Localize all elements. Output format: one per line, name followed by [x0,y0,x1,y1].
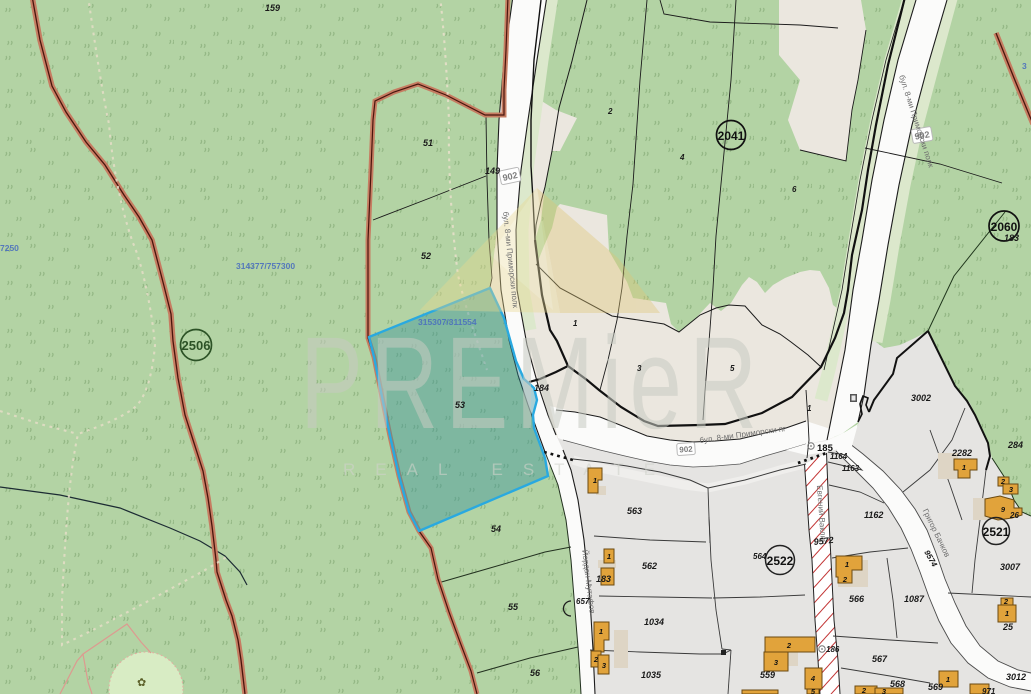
svg-text:284: 284 [1007,440,1023,450]
svg-text:54: 54 [491,524,501,534]
svg-text:184: 184 [534,383,549,393]
svg-text:971: 971 [982,687,996,694]
svg-text:183: 183 [596,574,611,584]
svg-text:✿: ✿ [137,677,146,689]
svg-text:1: 1 [573,319,578,328]
svg-text:3012: 3012 [1006,672,1026,682]
svg-text:1163: 1163 [842,464,860,473]
svg-text:1: 1 [962,463,966,472]
svg-text:2: 2 [607,107,613,116]
svg-text:3007: 3007 [1000,562,1021,572]
svg-text:566: 566 [849,594,865,604]
svg-text:1: 1 [845,560,849,569]
svg-text:PREMieR: PREMieR [300,311,764,457]
svg-text:53: 53 [455,400,465,410]
svg-text:3: 3 [637,364,642,373]
svg-text:2: 2 [1003,597,1009,606]
svg-text:569: 569 [928,682,943,692]
svg-text:2506: 2506 [182,338,211,353]
svg-text:2060: 2060 [991,220,1018,234]
svg-text:52: 52 [421,251,431,261]
svg-text:25: 25 [1002,622,1014,632]
svg-text:657: 657 [576,597,590,606]
svg-text:6: 6 [792,185,797,194]
svg-text:2: 2 [786,641,792,650]
svg-text:5: 5 [730,364,735,373]
svg-text:1162: 1162 [864,510,883,520]
svg-text:1: 1 [807,404,812,413]
svg-text:2522: 2522 [767,554,794,568]
svg-text:183: 183 [1004,233,1019,243]
svg-text:1: 1 [607,552,611,561]
svg-text:4: 4 [810,674,816,683]
svg-text:2: 2 [593,655,599,664]
svg-text:3002: 3002 [911,393,931,403]
svg-text:567: 567 [872,654,888,664]
svg-text:4: 4 [679,153,685,162]
svg-text:562: 562 [642,561,657,571]
svg-text:1164: 1164 [830,452,848,461]
svg-text:1087: 1087 [904,594,925,604]
svg-text:56: 56 [530,668,541,678]
svg-text:1: 1 [1005,609,1009,618]
svg-text:51: 51 [423,138,433,148]
svg-text:2521: 2521 [983,525,1010,539]
svg-text:1034: 1034 [644,617,664,627]
svg-text:3: 3 [1022,61,1027,71]
svg-text:2041: 2041 [718,129,745,143]
svg-text:563: 563 [627,506,642,516]
svg-text:1: 1 [946,675,950,684]
svg-text:314377/757300: 314377/757300 [236,261,295,271]
svg-text:568: 568 [890,679,905,689]
svg-text:149: 149 [485,166,500,176]
svg-text:9572: 9572 [813,535,834,547]
svg-text:2: 2 [1000,477,1006,486]
svg-text:1: 1 [599,627,603,636]
svg-text:2: 2 [861,686,867,694]
svg-text:55: 55 [508,602,519,612]
svg-text:559: 559 [760,670,775,680]
svg-text:2: 2 [842,575,848,584]
svg-text:26: 26 [1009,511,1019,520]
svg-text:902: 902 [679,445,693,455]
svg-text:564: 564 [753,552,767,561]
svg-text:1: 1 [593,476,597,485]
svg-text:7250: 7250 [0,243,19,253]
svg-text:1035: 1035 [641,670,662,680]
svg-text:159: 159 [265,3,280,13]
svg-text:REAL ESTATE: REAL ESTATE [343,460,675,479]
svg-text:2282: 2282 [951,448,972,458]
svg-text:315307/311554: 315307/311554 [418,317,477,327]
svg-text:186: 186 [826,645,840,654]
